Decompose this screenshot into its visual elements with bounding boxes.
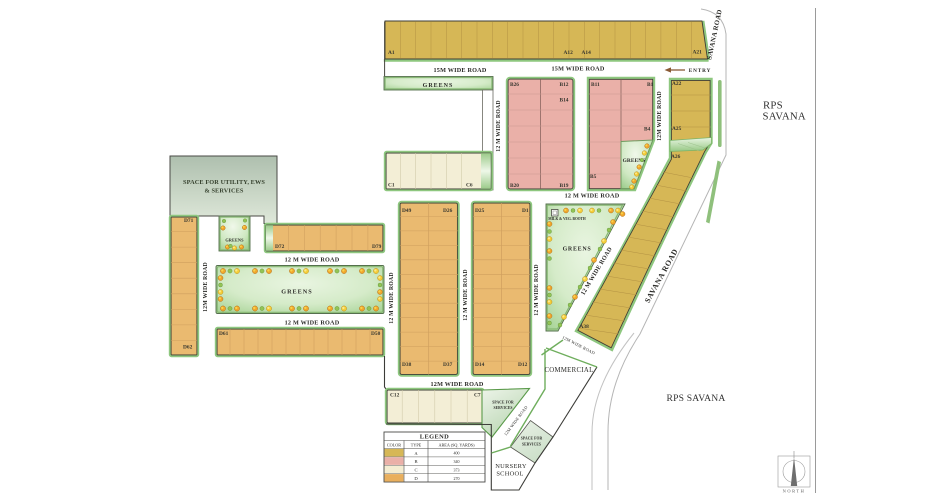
svg-text:A38: A38 [580, 324, 590, 330]
svg-text:B20: B20 [510, 183, 519, 189]
svg-text:GREENS: GREENS [563, 247, 592, 253]
svg-text:B12: B12 [560, 82, 569, 88]
svg-text:SPACE FOR UTILITY, EWS: SPACE FOR UTILITY, EWS [183, 179, 265, 186]
svg-text:D79: D79 [372, 244, 382, 250]
svg-text:SPACE FOR: SPACE FOR [521, 437, 543, 441]
svg-text:340: 340 [454, 459, 460, 464]
svg-text:& SERVICES: & SERVICES [204, 188, 243, 195]
svg-text:12 M WIDE ROAD: 12 M WIDE ROAD [534, 264, 540, 316]
svg-text:RPS SAVANA: RPS SAVANA [667, 393, 726, 404]
svg-text:15M WIDE ROAD: 15M WIDE ROAD [551, 66, 604, 73]
svg-text:C: C [414, 468, 417, 473]
svg-text:D14: D14 [475, 362, 485, 368]
svg-text:NURSERY: NURSERY [495, 463, 527, 470]
svg-text:AREA (SQ. YARDS): AREA (SQ. YARDS) [438, 443, 475, 448]
svg-text:12 M WIDE ROAD: 12 M WIDE ROAD [389, 272, 395, 324]
svg-text:D12: D12 [518, 362, 528, 368]
svg-text:D71: D71 [184, 218, 194, 224]
svg-text:15M WIDE ROAD: 15M WIDE ROAD [433, 67, 486, 74]
svg-text:D1: D1 [522, 208, 529, 214]
svg-text:D49: D49 [402, 208, 412, 214]
svg-text:12 M WIDE ROAD: 12 M WIDE ROAD [565, 193, 620, 200]
svg-text:D37: D37 [443, 362, 453, 368]
svg-text:B4: B4 [644, 127, 651, 133]
svg-text:12M WIDE ROAD: 12M WIDE ROAD [430, 381, 483, 388]
svg-text:12M WIDE ROAD: 12M WIDE ROAD [203, 262, 209, 312]
svg-text:B11: B11 [591, 82, 600, 88]
svg-text:12 M WIDE ROAD: 12 M WIDE ROAD [285, 257, 340, 264]
svg-text:SERVICES: SERVICES [522, 443, 541, 447]
svg-text:D50: D50 [371, 331, 381, 337]
svg-text:D62: D62 [183, 345, 193, 351]
svg-text:C6: C6 [466, 183, 473, 189]
svg-text:GREENS: GREENS [281, 289, 312, 296]
svg-text:B14: B14 [560, 98, 569, 104]
svg-text:A1: A1 [388, 50, 395, 56]
svg-text:TYPE: TYPE [411, 443, 422, 448]
svg-text:SERVICES: SERVICES [493, 406, 512, 410]
svg-text:B1: B1 [647, 82, 654, 88]
svg-text:12 M WIDE ROAD: 12 M WIDE ROAD [463, 269, 469, 321]
svg-text:LEGEND: LEGEND [420, 434, 449, 441]
svg-text:373: 373 [454, 468, 460, 473]
svg-text:A14: A14 [582, 50, 592, 56]
svg-text:A22: A22 [672, 81, 682, 87]
svg-text:A25: A25 [672, 126, 682, 132]
svg-text:270: 270 [454, 476, 460, 481]
svg-text:SPACE FOR: SPACE FOR [492, 401, 514, 405]
svg-text:D72: D72 [275, 244, 285, 250]
svg-text:SCHOOL: SCHOOL [496, 471, 523, 478]
svg-text:12 M WIDE ROAD: 12 M WIDE ROAD [285, 320, 340, 327]
svg-text:SAVANA: SAVANA [763, 111, 806, 123]
svg-text:B: B [414, 459, 417, 464]
svg-text:A21: A21 [693, 50, 703, 56]
svg-text:COLOR: COLOR [387, 443, 401, 448]
svg-text:COMMERCIAL: COMMERCIAL [544, 367, 593, 374]
svg-text:D38: D38 [402, 362, 412, 368]
svg-text:D25: D25 [475, 208, 485, 214]
svg-text:B26: B26 [510, 82, 519, 88]
svg-text:B5: B5 [590, 174, 597, 180]
svg-text:400: 400 [454, 451, 460, 456]
svg-text:12M WIDE ROAD: 12M WIDE ROAD [657, 91, 663, 141]
svg-text:NORTH: NORTH [783, 489, 806, 494]
svg-text:MILK & VEG. BOOTH: MILK & VEG. BOOTH [548, 217, 586, 221]
svg-text:D61: D61 [219, 331, 229, 337]
svg-text:C7: C7 [474, 393, 481, 399]
svg-text:D26: D26 [443, 208, 453, 214]
svg-text:A12: A12 [564, 50, 574, 56]
svg-text:C12: C12 [390, 393, 400, 399]
svg-text:12 M WIDE ROAD: 12 M WIDE ROAD [496, 100, 502, 152]
svg-text:B19: B19 [560, 183, 569, 189]
svg-text:A26: A26 [671, 154, 681, 160]
svg-text:GREENS: GREENS [423, 83, 454, 89]
svg-text:ENTRY: ENTRY [689, 68, 711, 74]
svg-text:C1: C1 [388, 183, 395, 189]
svg-text:GREENS: GREENS [225, 238, 244, 243]
